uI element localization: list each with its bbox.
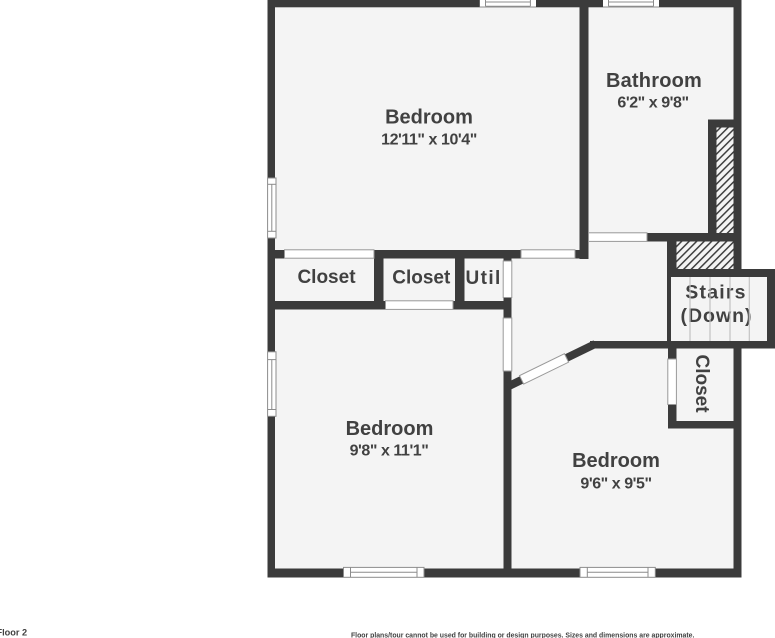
svg-text:Util: Util [465,268,501,289]
svg-text:Bathroom: Bathroom [606,70,702,92]
svg-text:Bedroom: Bedroom [346,418,434,440]
svg-text:Closet: Closet [297,267,356,288]
svg-text:9'8" x 11'1": 9'8" x 11'1" [350,443,429,460]
svg-text:12'11" x 10'4": 12'11" x 10'4" [381,132,477,149]
svg-text:9'6" x 9'5": 9'6" x 9'5" [580,476,651,493]
svg-text:Floor 2: Floor 2 [0,628,27,638]
svg-text:(Down): (Down) [680,305,752,327]
svg-text:Closet: Closet [392,268,451,289]
svg-text:6'2" x 9'8": 6'2" x 9'8" [617,95,688,112]
svg-text:Stairs: Stairs [685,282,746,304]
svg-text:Closet: Closet [691,354,712,413]
svg-text:Bedroom: Bedroom [385,107,473,129]
svg-text:Floor plans/tour cannot be use: Floor plans/tour cannot be used for buil… [351,632,695,638]
svg-text:Bedroom: Bedroom [572,450,660,472]
